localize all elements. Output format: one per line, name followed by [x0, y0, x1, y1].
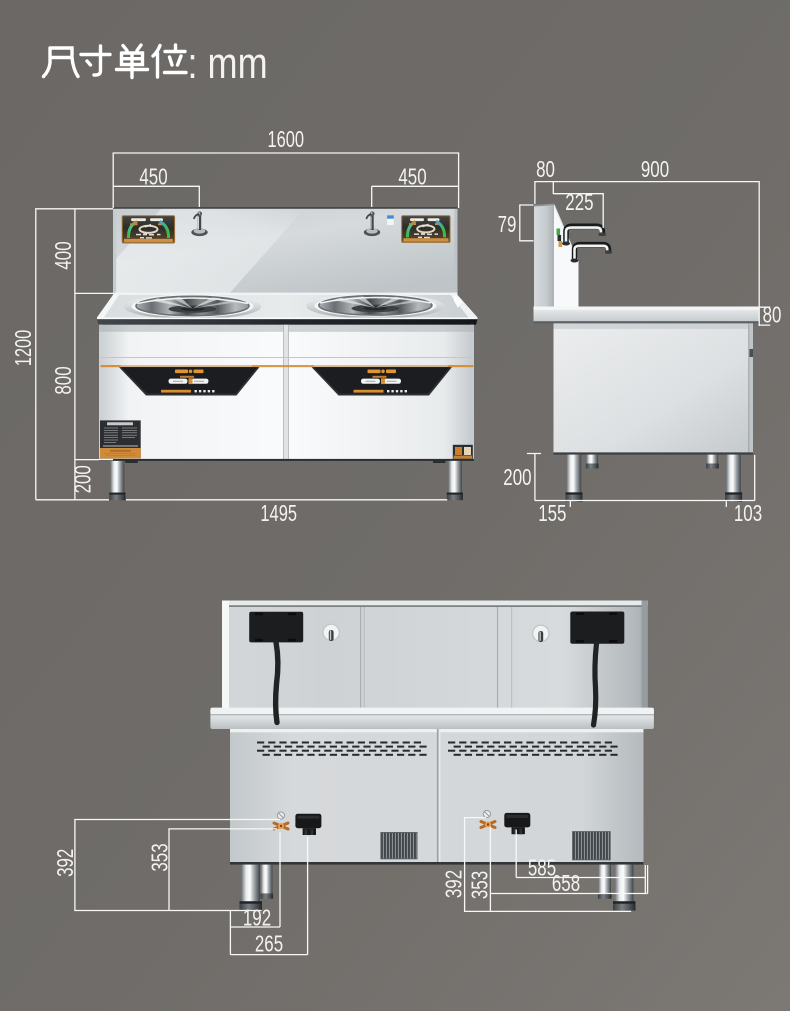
svg-text:192: 192 — [243, 905, 271, 931]
svg-text:400: 400 — [50, 241, 76, 269]
svg-text:79: 79 — [498, 211, 517, 237]
svg-text:265: 265 — [255, 931, 283, 957]
svg-text:800: 800 — [50, 366, 76, 394]
svg-text:900: 900 — [641, 156, 669, 182]
svg-text:450: 450 — [398, 164, 426, 190]
svg-text:353: 353 — [147, 843, 173, 871]
svg-text:80: 80 — [536, 156, 555, 182]
svg-text:658: 658 — [552, 870, 580, 896]
svg-text:200: 200 — [70, 465, 96, 493]
svg-text:1600: 1600 — [268, 127, 305, 152]
svg-text:80: 80 — [763, 302, 782, 328]
svg-text:392: 392 — [52, 849, 78, 877]
svg-text:225: 225 — [565, 189, 593, 215]
svg-text:1200: 1200 — [11, 330, 36, 367]
svg-text:200: 200 — [503, 464, 531, 490]
svg-text:1495: 1495 — [260, 501, 297, 526]
svg-text:103: 103 — [734, 500, 762, 526]
svg-text:353: 353 — [467, 871, 493, 899]
svg-text:450: 450 — [139, 164, 167, 190]
svg-text:: mm: : mm — [188, 39, 268, 88]
svg-text:392: 392 — [441, 870, 467, 898]
svg-text:155: 155 — [538, 500, 566, 526]
